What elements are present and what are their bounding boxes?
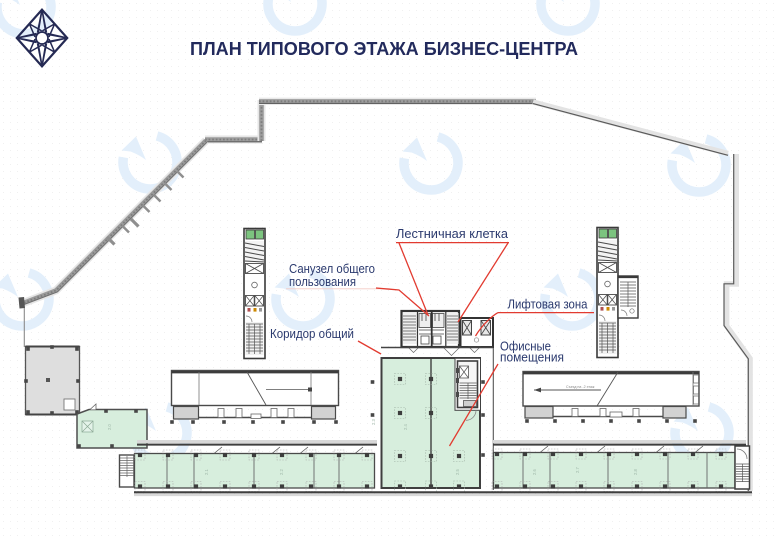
svg-text:2.6: 2.6 xyxy=(532,469,537,475)
svg-text:2.5: 2.5 xyxy=(455,469,460,475)
svg-text:Лестничная клетка: Лестничная клетка xyxy=(396,226,509,241)
svg-text:2.2: 2.2 xyxy=(279,469,284,475)
svg-text:2.1: 2.1 xyxy=(204,469,209,475)
svg-text:Лифтовая зона: Лифтовая зона xyxy=(508,297,589,312)
svg-text:2.8: 2.8 xyxy=(633,469,638,475)
svg-text:2.4: 2.4 xyxy=(403,424,408,430)
svg-text:пользования: пользования xyxy=(289,274,356,289)
svg-text:2.0: 2.0 xyxy=(107,424,112,430)
svg-text:2.3: 2.3 xyxy=(371,419,376,425)
svg-text:2.7: 2.7 xyxy=(575,467,580,473)
svg-text:ПЛАН ТИПОВОГО ЭТАЖА БИЗНЕС-ЦЕН: ПЛАН ТИПОВОГО ЭТАЖА БИЗНЕС-ЦЕНТРА xyxy=(190,39,578,59)
svg-text:Коридор общий: Коридор общий xyxy=(270,326,354,341)
svg-text:Съезд на -2 этаж: Съезд на -2 этаж xyxy=(566,385,595,389)
svg-text:помещения: помещения xyxy=(500,350,564,365)
